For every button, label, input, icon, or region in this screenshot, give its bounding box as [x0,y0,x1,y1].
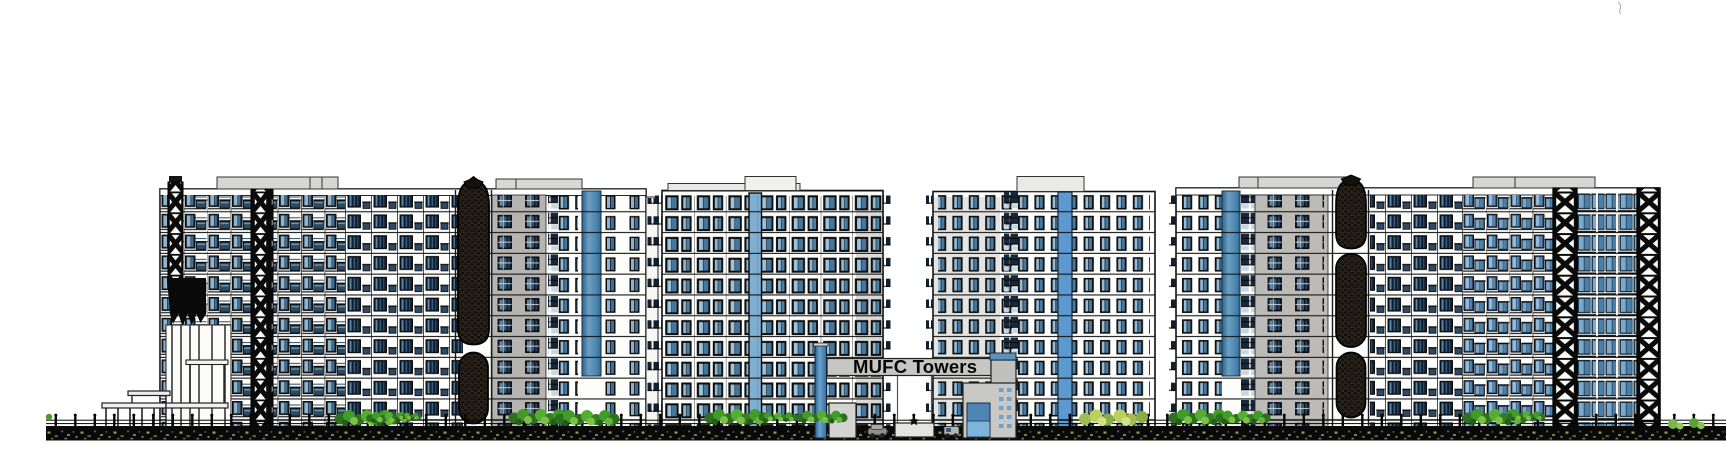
svg-text:MUFC Towers: MUFC Towers [853,356,977,377]
